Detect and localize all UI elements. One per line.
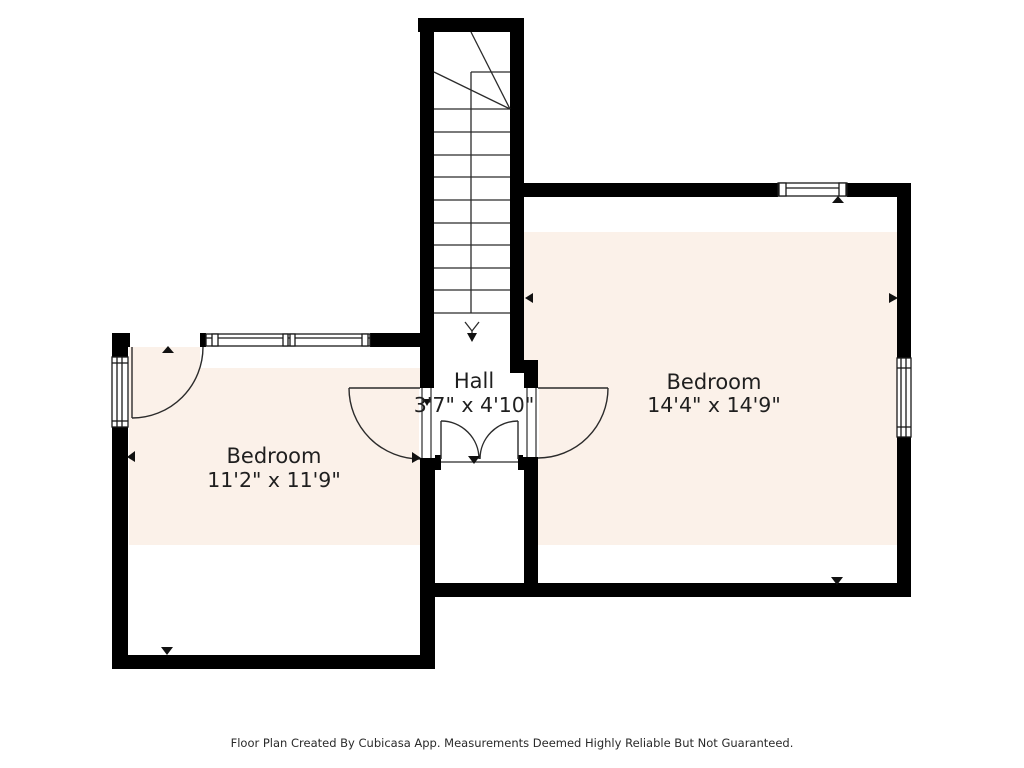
marker-down-icon (161, 647, 173, 655)
wall-left-bedroom-left-b (112, 427, 128, 669)
left-bedroom-dimensions: 11'2" x 11'9" (207, 468, 341, 492)
wall-right-bedroom-right-b (897, 437, 911, 597)
stair-winder-line (434, 72, 510, 109)
wall-left-bedroom-right-lower (420, 457, 435, 669)
floor-plan-canvas: Hall 3'7" x 4'10" Bedroom 14'4" x 14'9" … (0, 0, 1024, 768)
left-bedroom-side-window (112, 357, 128, 427)
left-bedroom-label: Bedroom (227, 444, 322, 468)
stair-down-arrowhead-icon (467, 333, 477, 342)
footer-disclaimer: Floor Plan Created By Cubicasa App. Meas… (231, 736, 794, 750)
staircase (434, 32, 510, 335)
floor-plan-page: Hall 3'7" x 4'10" Bedroom 14'4" x 14'9" … (0, 0, 1024, 768)
wall-right-bedroom-right-a (897, 183, 911, 358)
right-bedroom-label: Bedroom (667, 370, 762, 394)
wall-right-bedroom-top-a (510, 183, 778, 197)
wall-hall-door-jamb-right (518, 455, 538, 470)
door-swing-arc (480, 421, 518, 459)
wall-right-bedroom-left-upper (524, 373, 538, 388)
wall-bottom-long (421, 583, 911, 597)
wall-left-bedroom-bottom (112, 655, 435, 669)
hall-double-door (441, 421, 518, 459)
right-bedroom-dimensions: 14'4" x 14'9" (647, 393, 781, 417)
stair-winder-line (471, 32, 510, 109)
wall-left-bedroom-top-c (370, 333, 434, 347)
right-bedroom-top-window (778, 183, 847, 196)
door-swing-arc (441, 421, 479, 459)
marker-down-icon (468, 456, 480, 464)
marker-up-icon (832, 196, 844, 203)
hall-label: Hall (454, 369, 494, 393)
right-bedroom-side-window (897, 358, 911, 437)
stair-direction-tail (465, 322, 479, 331)
wall-right-bedroom-left-lower (524, 457, 538, 597)
wall-left-bedroom-top-b (200, 333, 206, 347)
hall-dimensions: 3'7" x 4'10" (414, 393, 535, 417)
wall-left-bedroom-left-a (112, 333, 128, 357)
wall-stairwell-left (420, 18, 434, 388)
left-bedroom-top-window (206, 334, 370, 346)
wall-jog (510, 360, 538, 373)
